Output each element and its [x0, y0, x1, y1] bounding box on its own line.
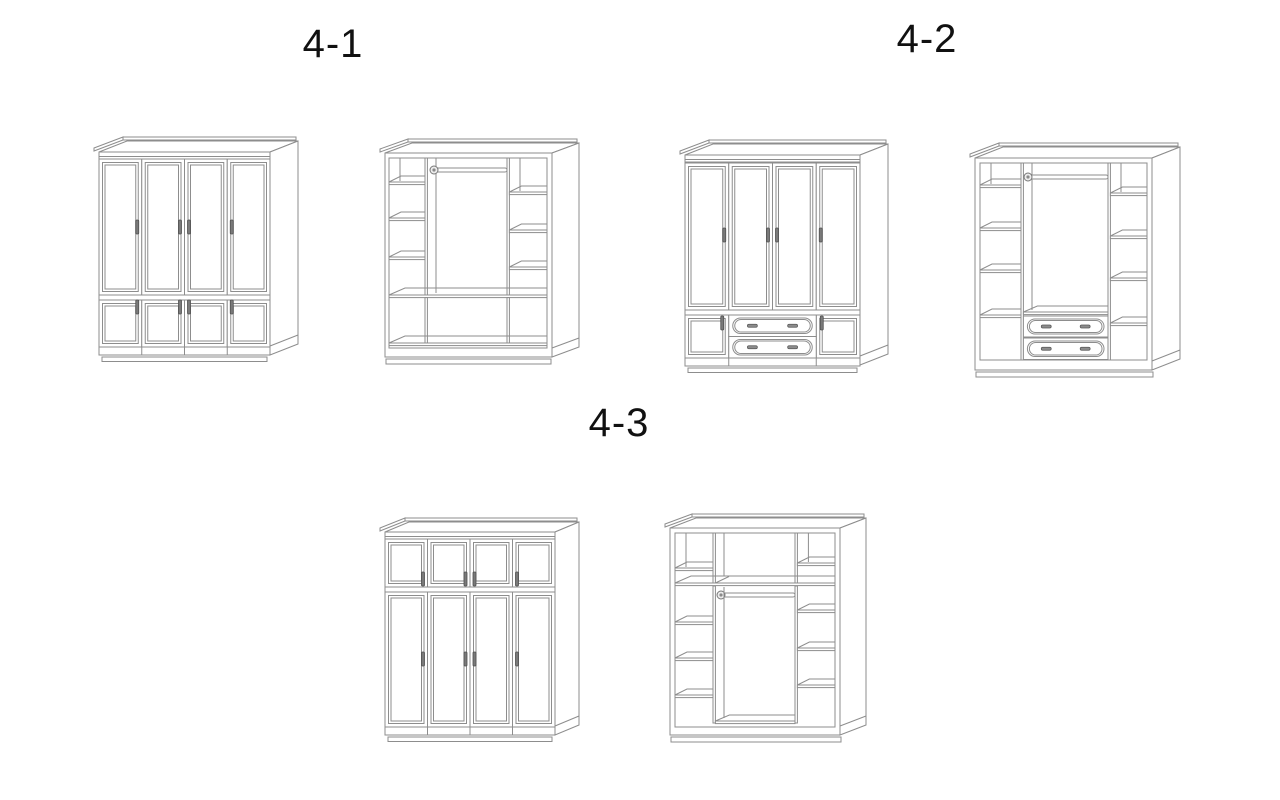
wardrobe-diagram-page: 4-1 4-2 4-3 [0, 0, 1280, 800]
wardrobe-4-1-interior-drawing [383, 137, 579, 373]
figure-label-4-3: 4-3 [589, 403, 650, 443]
figure-label-4-2: 4-2 [897, 19, 958, 59]
wardrobe-4-1-exterior-drawing [97, 131, 305, 365]
wardrobe-4-3-exterior-drawing [383, 513, 578, 748]
wardrobe-4-3-interior-drawing [668, 510, 872, 747]
figure-label-4-1: 4-1 [303, 24, 364, 64]
wardrobe-4-2-interior-drawing [973, 142, 1188, 378]
wardrobe-4-2-exterior-drawing [683, 133, 890, 377]
